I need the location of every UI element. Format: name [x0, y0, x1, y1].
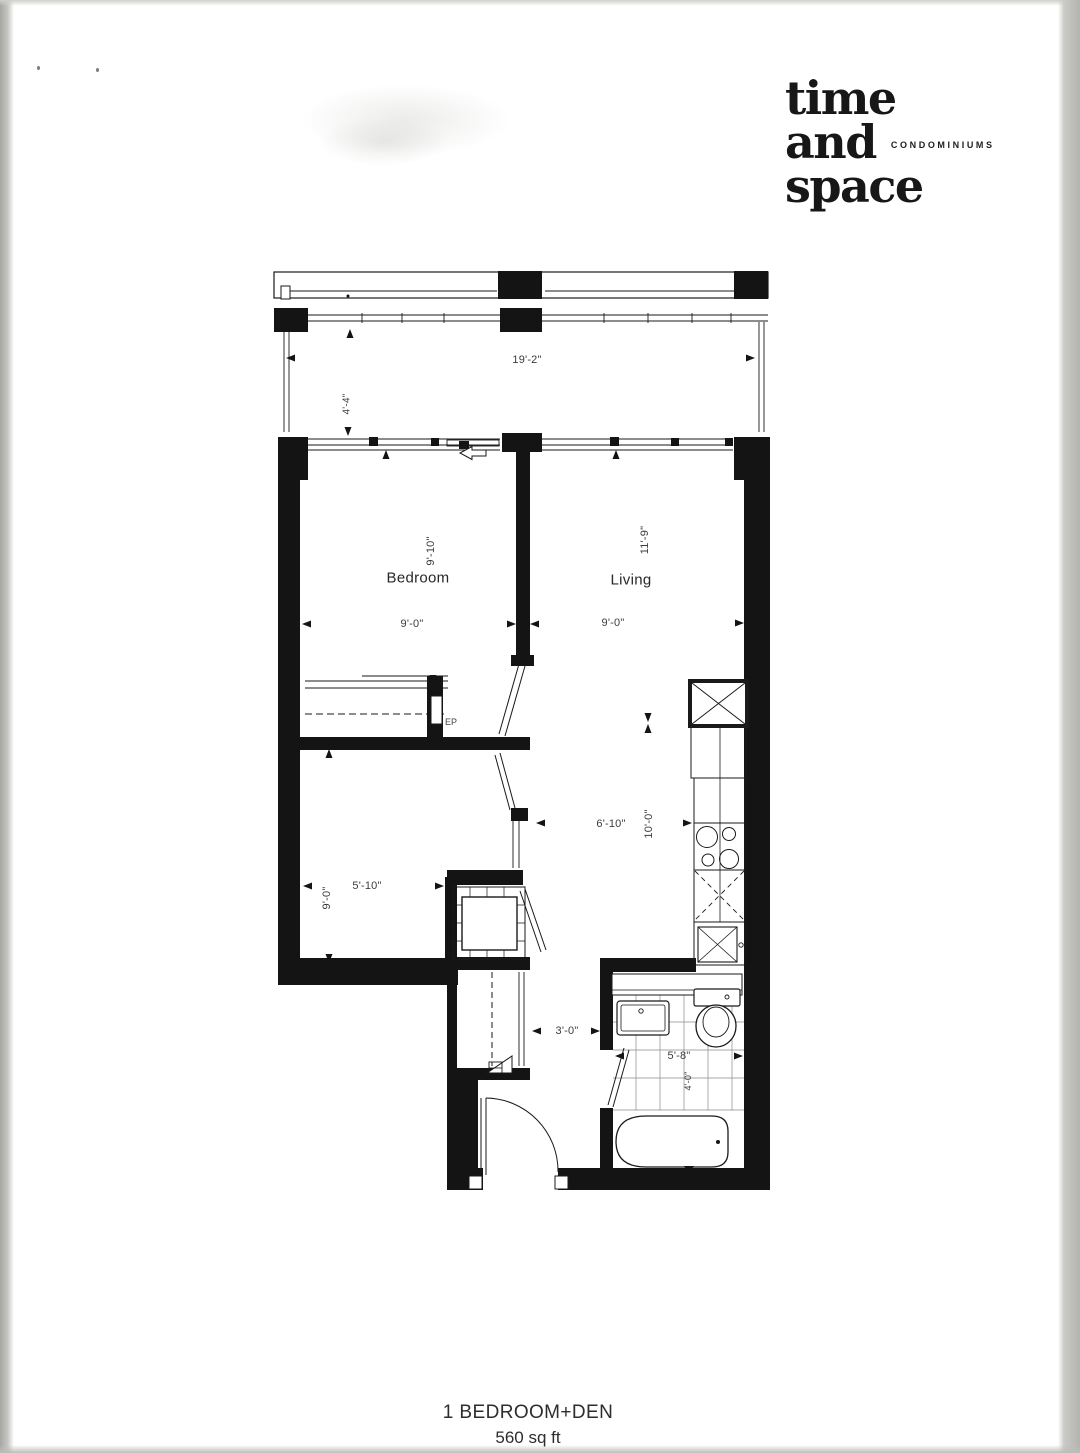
kitchen-fridge	[690, 681, 747, 726]
dim-den-depth: 9'-0"	[321, 887, 333, 910]
dim-den-width: 5'-10"	[352, 880, 381, 892]
laundry-closet	[453, 887, 546, 959]
dim-living-depth: 11'-9"	[639, 526, 651, 554]
dim-kitchen-depth: 10'-0"	[643, 809, 655, 838]
kitchen-sink	[698, 927, 743, 962]
dim-kitchen-width: 6'-10"	[596, 818, 625, 830]
dishwasher	[695, 871, 744, 920]
bathroom-sink	[617, 1001, 669, 1035]
bedroom-closet	[305, 676, 448, 740]
bathtub	[616, 1116, 728, 1167]
stove-burners	[697, 827, 739, 869]
dim-bedroom-depth: 9'-10"	[425, 536, 437, 565]
dim-bath-width: 5'-8"	[668, 1050, 691, 1062]
room-label-bedroom: Bedroom	[387, 570, 450, 587]
dim-balcony-depth: 4'-4"	[342, 394, 353, 415]
entry-closet	[487, 972, 524, 1073]
toilet	[694, 989, 740, 1047]
unit-type-label: 1 BEDROOM+DEN	[388, 1402, 668, 1424]
dim-hall-width: 3'-0"	[556, 1025, 579, 1037]
dim-balcony-width: 19'-2"	[512, 354, 541, 366]
entry-door	[469, 1098, 568, 1189]
kitchen-counter	[691, 726, 746, 965]
plan-caption: 1 BEDROOM+DEN 560 sq ft	[388, 1402, 668, 1448]
dim-living-width: 9'-0"	[602, 617, 625, 629]
dim-bath-depth: 4'-0"	[683, 1072, 693, 1091]
unit-area-label: 560 sq ft	[388, 1428, 668, 1448]
room-label-living: Living	[611, 572, 652, 589]
dim-bedroom-width: 9'-0"	[401, 618, 424, 630]
bedroom-door	[499, 664, 525, 736]
electrical-panel-label: EP	[445, 717, 457, 727]
floorplan-drawing	[0, 0, 1080, 1453]
